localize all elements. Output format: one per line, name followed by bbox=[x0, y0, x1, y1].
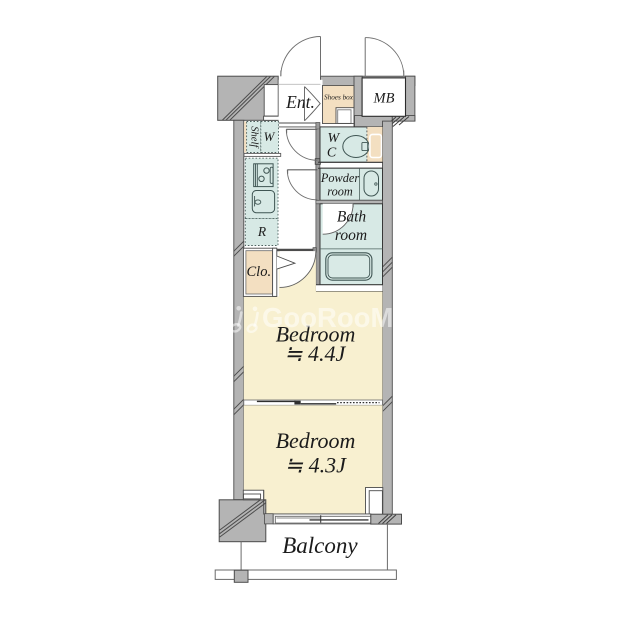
svg-text:Balcony: Balcony bbox=[282, 533, 358, 558]
svg-text:Shoes box: Shoes box bbox=[324, 94, 354, 102]
svg-text:≒ 4.3J: ≒ 4.3J bbox=[285, 453, 347, 478]
svg-text:R: R bbox=[257, 224, 267, 239]
svg-text:C: C bbox=[327, 146, 337, 161]
svg-text:W: W bbox=[264, 130, 276, 144]
svg-text:Shelf: Shelf bbox=[248, 126, 259, 149]
svg-text:≒ 4.4J: ≒ 4.4J bbox=[284, 341, 346, 366]
svg-text:room: room bbox=[327, 185, 353, 199]
svg-text:room: room bbox=[335, 227, 367, 244]
svg-text:Powder: Powder bbox=[320, 171, 359, 185]
svg-text:MB: MB bbox=[373, 91, 395, 107]
svg-text:GooRooM: GooRooM bbox=[262, 302, 393, 333]
svg-text:Clo.: Clo. bbox=[247, 264, 272, 280]
svg-text:W: W bbox=[327, 131, 340, 146]
svg-text:Bedroom: Bedroom bbox=[276, 428, 356, 453]
svg-text:Bath: Bath bbox=[337, 209, 367, 226]
svg-text:Ent.: Ent. bbox=[285, 92, 315, 112]
